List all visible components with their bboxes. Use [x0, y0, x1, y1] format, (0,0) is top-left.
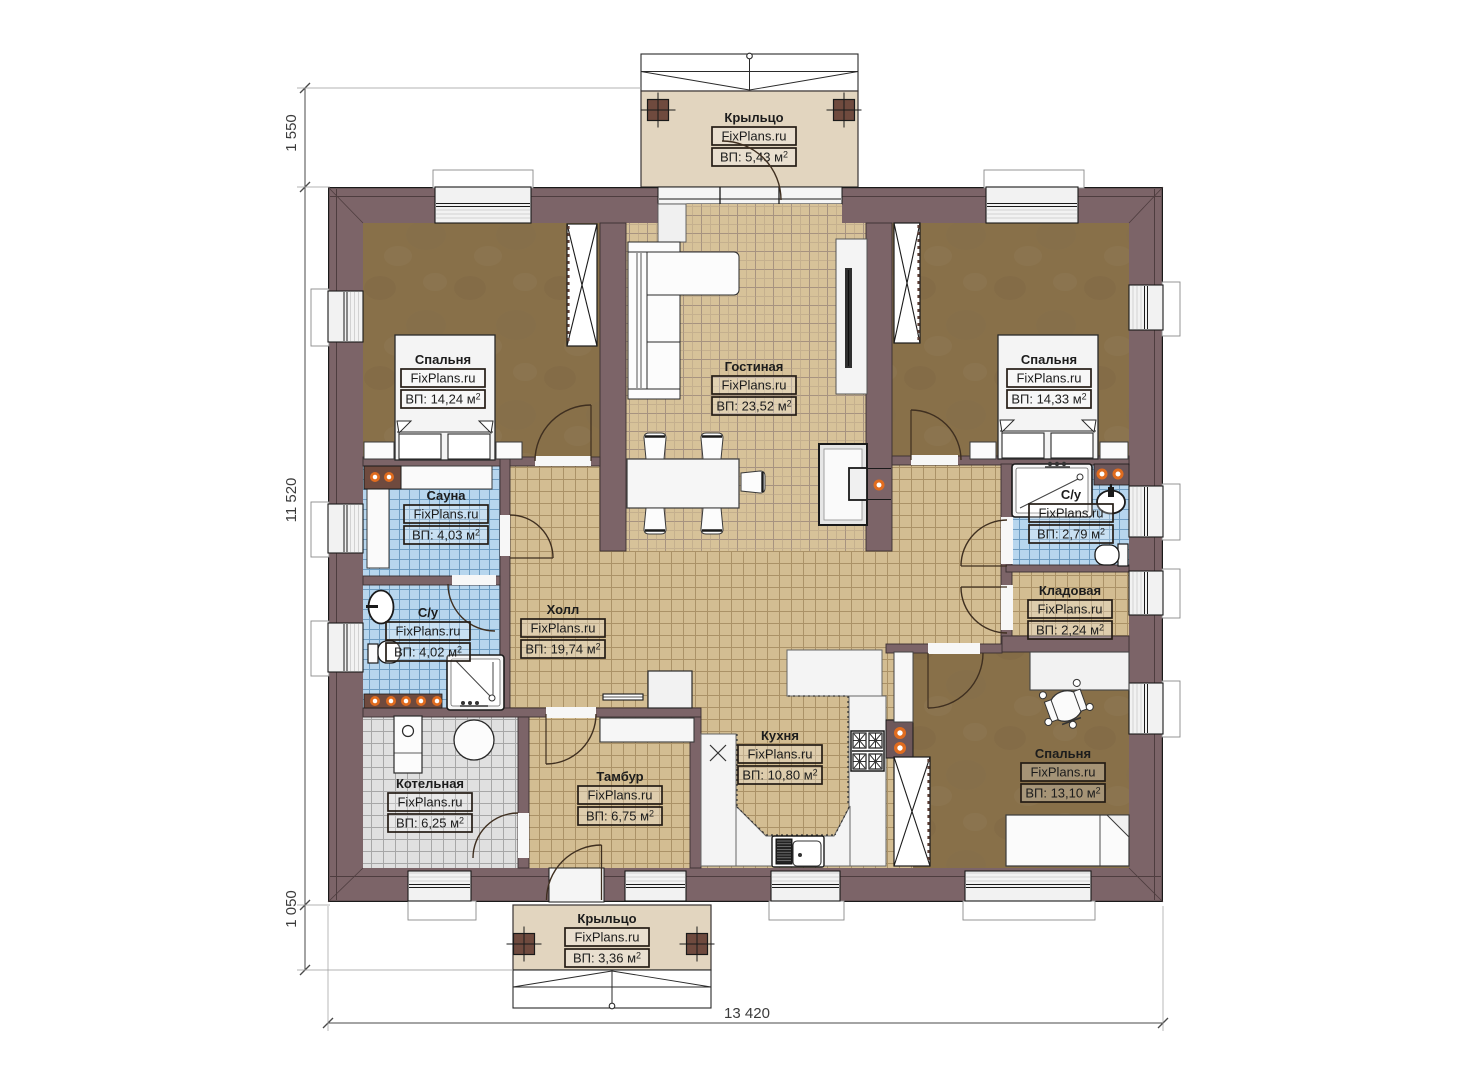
svg-text:ВП: 14,33 м2: ВП: 14,33 м2 [1011, 392, 1086, 407]
svg-text:ВП: 4,03 м2: ВП: 4,03 м2 [412, 528, 480, 543]
svg-text:FixPlans.ru: FixPlans.ru [413, 507, 478, 522]
svg-text:С/у: С/у [1061, 487, 1082, 502]
svg-text:FixPlans.ru: FixPlans.ru [397, 795, 462, 810]
svg-text:ВП: 2,24 м2: ВП: 2,24 м2 [1036, 623, 1104, 638]
svg-text:1 550: 1 550 [283, 114, 300, 152]
svg-text:FixPlans.ru: FixPlans.ru [1037, 602, 1102, 617]
svg-text:ВП: 6,25 м2: ВП: 6,25 м2 [396, 816, 464, 831]
svg-text:FixPlans.ru: FixPlans.ru [1038, 506, 1103, 521]
svg-text:ВП: 6,75 м2: ВП: 6,75 м2 [586, 809, 654, 824]
svg-text:ВП: 4,02 м2: ВП: 4,02 м2 [394, 645, 462, 660]
svg-text:Сауна: Сауна [426, 488, 466, 503]
svg-text:FixPlans.ru: FixPlans.ru [395, 624, 460, 639]
svg-text:Спальня: Спальня [415, 352, 471, 367]
svg-text:ВП: 2,79 м2: ВП: 2,79 м2 [1037, 527, 1105, 542]
svg-text:ВП: 5,43 м2: ВП: 5,43 м2 [720, 150, 788, 165]
svg-text:Тамбур: Тамбур [596, 769, 643, 784]
svg-text:С/у: С/у [418, 605, 439, 620]
svg-text:Крыльцо: Крыльцо [724, 110, 783, 125]
svg-text:FixPlans.ru: FixPlans.ru [587, 788, 652, 803]
svg-text:ВП: 23,52 м2: ВП: 23,52 м2 [716, 399, 791, 414]
svg-text:Спальня: Спальня [1021, 352, 1077, 367]
svg-text:Крыльцо: Крыльцо [577, 911, 636, 926]
svg-text:Котельная: Котельная [396, 776, 464, 791]
svg-text:FixPlans.ru: FixPlans.ru [1030, 765, 1095, 780]
svg-text:ВП: 14,24 м2: ВП: 14,24 м2 [405, 392, 480, 407]
svg-text:Холл: Холл [547, 602, 580, 617]
svg-text:ВП: 19,74 м2: ВП: 19,74 м2 [525, 642, 600, 657]
svg-text:11 520: 11 520 [283, 478, 300, 523]
svg-text:1 050: 1 050 [283, 890, 300, 928]
svg-text:FixPlans.ru: FixPlans.ru [410, 371, 475, 386]
svg-text:Кладовая: Кладовая [1039, 583, 1101, 598]
svg-text:FixPlans.ru: FixPlans.ru [1016, 371, 1081, 386]
svg-text:FixPlans.ru: FixPlans.ru [747, 747, 812, 762]
svg-text:Кухня: Кухня [761, 728, 799, 743]
svg-text:ВП: 10,80 м2: ВП: 10,80 м2 [742, 768, 817, 783]
svg-text:13 420: 13 420 [724, 1005, 770, 1022]
svg-text:Спальня: Спальня [1035, 746, 1091, 761]
svg-text:FixPlans.ru: FixPlans.ru [721, 378, 786, 393]
svg-text:ВП: 13,10 м2: ВП: 13,10 м2 [1025, 786, 1100, 801]
svg-text:FixPlans.ru: FixPlans.ru [530, 621, 595, 636]
svg-text:ВП: 3,36 м2: ВП: 3,36 м2 [573, 951, 641, 966]
svg-text:FixPlans.ru: FixPlans.ru [574, 930, 639, 945]
svg-text:Гостиная: Гостиная [725, 359, 784, 374]
